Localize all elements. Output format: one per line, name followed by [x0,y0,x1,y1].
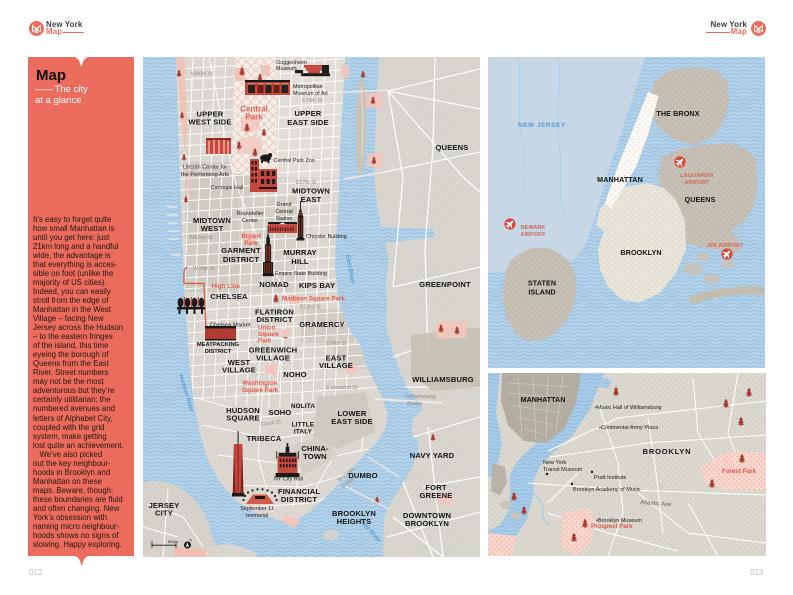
svg-text:800m: 800m [168,539,179,544]
svg-text:QUEENS: QUEENS [436,143,469,152]
svg-text:EAST SIDE: EAST SIDE [287,118,328,127]
svg-text:Metropolitan: Metropolitan [293,84,323,90]
svg-text:Empire State Building: Empire State Building [275,271,327,277]
svg-text:SOHO: SOHO [269,408,292,417]
svg-text:Washington: Washington [242,380,277,387]
svg-text:W86th St: W86th St [191,72,213,78]
svg-text:VILLAGE: VILLAGE [256,354,290,363]
svg-text:DISTRICT: DISTRICT [256,315,292,324]
svg-text:GREENPOINT: GREENPOINT [419,280,471,289]
svg-text:NEWARK: NEWARK [521,225,546,231]
svg-text:E14th St: E14th St [326,341,347,347]
svg-text:BROOKLYN: BROOKLYN [643,447,692,456]
svg-text:VILLAGE: VILLAGE [222,366,256,375]
svg-text:CHELSEA: CHELSEA [210,292,248,301]
svg-text:ITALY: ITALY [294,429,313,436]
svg-text:E57th St: E57th St [296,180,317,186]
svg-text:E79th St: E79th St [302,98,323,104]
svg-text:New York: New York [543,460,566,466]
svg-text:Pratt Institute: Pratt Institute [594,475,626,481]
svg-text:DUMBO: DUMBO [348,471,377,480]
svg-text:MANHATTAN: MANHATTAN [521,395,566,404]
svg-text:VILLAGE: VILLAGE [319,361,353,370]
svg-text:•Music Hall of Williamsburg: •Music Hall of Williamsburg [595,405,661,411]
svg-text:NOLITA: NOLITA [291,403,315,410]
svg-text:BROOKLYN: BROOKLYN [405,519,449,528]
svg-text:TOWN: TOWN [303,452,327,461]
svg-text:Chelsea Market: Chelsea Market [210,323,251,329]
svg-text:memorial: memorial [246,513,268,519]
svg-text:WEST: WEST [201,224,224,233]
svg-text:MEATPACKING: MEATPACKING [197,342,240,348]
svg-text:Madison Square Park: Madison Square Park [282,296,345,303]
svg-text:KIPS BAY: KIPS BAY [299,281,335,290]
svg-text:•Continental Army Plaza: •Continental Army Plaza [599,425,659,431]
svg-text:LITTLE: LITTLE [292,422,315,429]
svg-text:E Houston St: E Houston St [326,385,358,391]
svg-text:September 11: September 11 [240,506,273,512]
svg-text:Forest Park: Forest Park [722,468,757,475]
svg-text:Central Park Zoo: Central Park Zoo [274,158,315,164]
svg-text:W42nd St: W42nd St [189,235,213,241]
svg-text:LAGUARDIA: LAGUARDIA [680,173,714,179]
svg-text:JFK AIRPORT: JFK AIRPORT [706,243,744,249]
svg-text:Bryant: Bryant [241,233,261,240]
svg-text:NOMAD: NOMAD [259,280,289,289]
svg-text:Carnegie Hall: Carnegie Hall [211,185,244,191]
svg-text:Museum: Museum [276,66,297,72]
svg-text:E23rd St: E23rd St [300,305,321,311]
svg-text:Bridge: Bridge [407,401,422,407]
svg-text:High Line: High Line [212,283,241,290]
svg-text:Brooklyn Academy of Music: Brooklyn Academy of Music [573,487,641,493]
svg-text:SQUARE: SQUARE [226,414,259,423]
svg-text:AIRPORT: AIRPORT [684,180,710,186]
svg-text:QUEENS: QUEENS [685,195,716,204]
svg-text:ISLAND: ISLAND [528,288,555,297]
svg-text:Transit Museum: Transit Museum [543,467,583,473]
svg-text:Williamsburg: Williamsburg [405,394,435,400]
svg-text:Chrysler Building: Chrysler Building [306,234,347,240]
svg-text:Station: Station [276,216,293,222]
svg-text:NY City Hall: NY City Hall [274,477,303,483]
svg-text:Central: Central [275,209,292,215]
svg-text:UPPER: UPPER [295,109,322,118]
svg-text:MANHATTAN: MANHATTAN [597,175,643,184]
svg-text:Park: Park [244,240,258,247]
svg-text:STATEN: STATEN [528,279,556,288]
svg-text:TRIBECA: TRIBECA [247,434,282,443]
svg-text:Prospect Park: Prospect Park [591,523,633,530]
svg-text:Museum of Art: Museum of Art [293,91,328,97]
svg-text:NEW JERSEY: NEW JERSEY [518,122,566,129]
svg-text:GARMENT: GARMENT [221,246,261,255]
svg-text:W34th St: W34th St [193,266,215,272]
svg-text:Square Park: Square Park [242,387,279,394]
svg-text:MURRAY: MURRAY [283,248,317,257]
svg-text:EAST SIDE: EAST SIDE [331,417,372,426]
svg-text:AIRPORT: AIRPORT [520,232,546,238]
svg-text:BROOKLYN: BROOKLYN [620,248,661,257]
svg-text:Center: Center [242,218,258,224]
svg-text:CITY: CITY [155,509,173,518]
svg-text:DISTRICT: DISTRICT [205,349,232,355]
svg-text:Lincoln Center for: Lincoln Center for [183,165,227,171]
svg-text:Park: Park [258,338,272,345]
svg-text:GREENE: GREENE [420,491,453,500]
svg-text:WILLIAMSBURG: WILLIAMSBURG [412,375,474,384]
svg-text:WEST SIDE: WEST SIDE [188,118,231,127]
svg-text:HEIGHTS: HEIGHTS [337,517,372,526]
svg-text:NOHO: NOHO [283,370,306,379]
svg-text:DISTRICT: DISTRICT [281,495,317,504]
svg-text:HILL: HILL [291,257,309,266]
svg-text:Rockefeller: Rockefeller [237,211,264,217]
svg-text:the Performing Arts: the Performing Arts [181,172,229,178]
svg-text:DISTRICT: DISTRICT [223,255,259,264]
svg-text:Grand: Grand [277,202,292,208]
svg-text:NAVY YARD: NAVY YARD [410,451,455,460]
svg-text:Park: Park [245,113,263,122]
svg-text:THE BRONX: THE BRONX [656,109,699,118]
svg-text:EAST: EAST [301,195,322,204]
svg-text:GRAMERCY: GRAMERCY [299,320,345,329]
